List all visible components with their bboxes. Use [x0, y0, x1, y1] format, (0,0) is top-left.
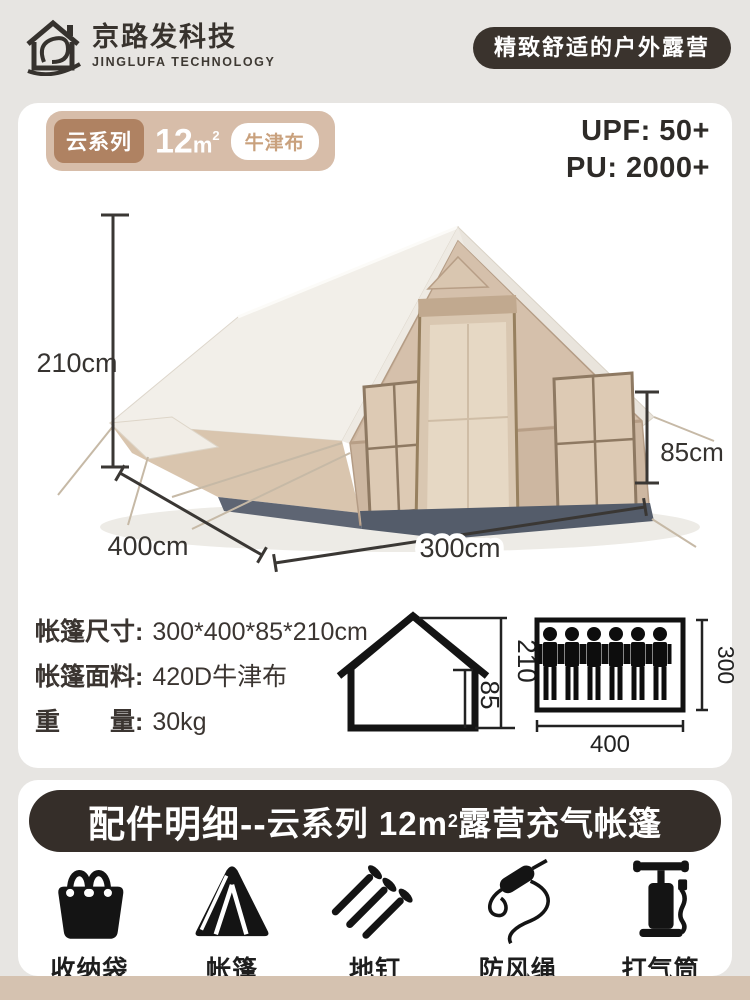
accessory-item: 收纳袋 — [29, 856, 149, 986]
dimension-wall: 85cm — [635, 392, 724, 483]
header: 京路发科技 JINGLUFA TECHNOLOGY 精致舒适的户外露营 — [0, 0, 750, 92]
house-outline — [351, 616, 475, 728]
brand-text: 京路发科技 JINGLUFA TECHNOLOGY — [92, 22, 275, 69]
house-height-diagram: 210 85 — [335, 606, 535, 741]
accessory-item: 打气筒 — [601, 856, 721, 986]
accessory-item: 帐篷 — [172, 856, 292, 986]
wind-rope-icon — [472, 856, 564, 946]
svg-text:400cm: 400cm — [107, 531, 188, 561]
svg-text:85cm: 85cm — [660, 437, 724, 467]
tent-illustration: 210cm 400cm 300cm 85cm — [20, 195, 730, 595]
ground-stake-icon — [329, 856, 421, 946]
svg-text:85: 85 — [475, 681, 505, 710]
house-logo-icon — [22, 14, 84, 76]
brand-logo: 京路发科技 JINGLUFA TECHNOLOGY — [22, 14, 275, 76]
accessory-item: 防风绳 — [458, 856, 578, 986]
slogan-badge: 精致舒适的户外露营 — [473, 27, 731, 69]
svg-text:400: 400 — [590, 731, 630, 758]
svg-text:210cm: 210cm — [36, 348, 117, 378]
spec-list: 帐篷尺寸:300*400*85*210cm 帐篷面料:420D牛津布 重 量:3… — [35, 612, 345, 747]
storage-bag-icon — [43, 856, 135, 946]
product-card: 云系列 12m2 牛津布 UPF: 50+ PU: 2000+ — [18, 103, 732, 768]
upf-rating: UPF: 50+ — [566, 113, 710, 150]
brand-name-en: JINGLUFA TECHNOLOGY — [92, 55, 275, 69]
accessories-title-banner: 配件明细--云系列 12m2露营充气帐篷 — [29, 790, 721, 852]
bottom-strip — [0, 976, 750, 1000]
tent-icon — [186, 856, 278, 946]
page: 京路发科技 JINGLUFA TECHNOLOGY 精致舒适的户外露营 云系列 … — [0, 0, 750, 1000]
fabric-badge: 牛津布 — [231, 123, 319, 160]
accessory-item: 地钉 — [315, 856, 435, 986]
accessories-card: 配件明细--云系列 12m2露营充气帐篷 收纳袋 帐篷 — [18, 780, 732, 976]
accessories-row: 收纳袋 帐篷 — [18, 856, 732, 986]
protection-ratings: UPF: 50+ PU: 2000+ — [566, 113, 710, 187]
spec-row-size: 帐篷尺寸:300*400*85*210cm — [35, 612, 345, 657]
spec-row-fabric: 帐篷面料:420D牛津布 — [35, 657, 345, 702]
area-badge: 12m2 — [155, 119, 220, 162]
svg-text:300: 300 — [713, 646, 735, 684]
series-badge: 云系列 — [54, 119, 144, 163]
capacity-diagram: 300 400 — [525, 608, 735, 758]
brand-name-cn: 京路发科技 — [92, 22, 275, 52]
air-pump-icon — [615, 856, 707, 946]
svg-text:300cm: 300cm — [419, 533, 500, 563]
pu-rating: PU: 2000+ — [566, 150, 710, 187]
product-badges: 云系列 12m2 牛津布 — [46, 111, 335, 171]
spec-row-weight: 重 量:30kg — [35, 702, 345, 747]
